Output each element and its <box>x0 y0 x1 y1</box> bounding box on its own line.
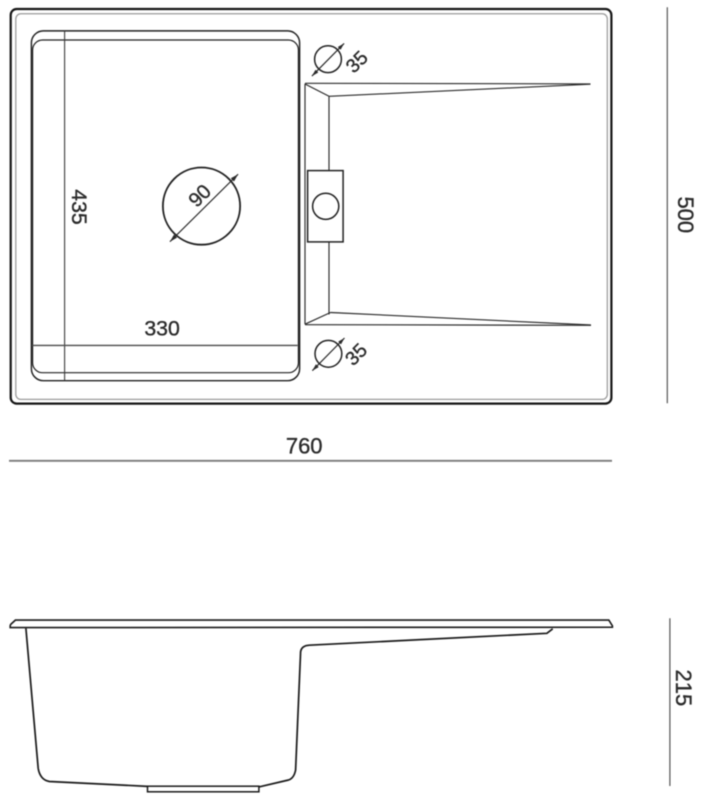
svg-text:500: 500 <box>673 196 698 233</box>
svg-text:435: 435 <box>67 189 91 225</box>
svg-text:330: 330 <box>144 317 180 341</box>
svg-text:215: 215 <box>671 670 696 707</box>
svg-text:760: 760 <box>286 433 323 458</box>
